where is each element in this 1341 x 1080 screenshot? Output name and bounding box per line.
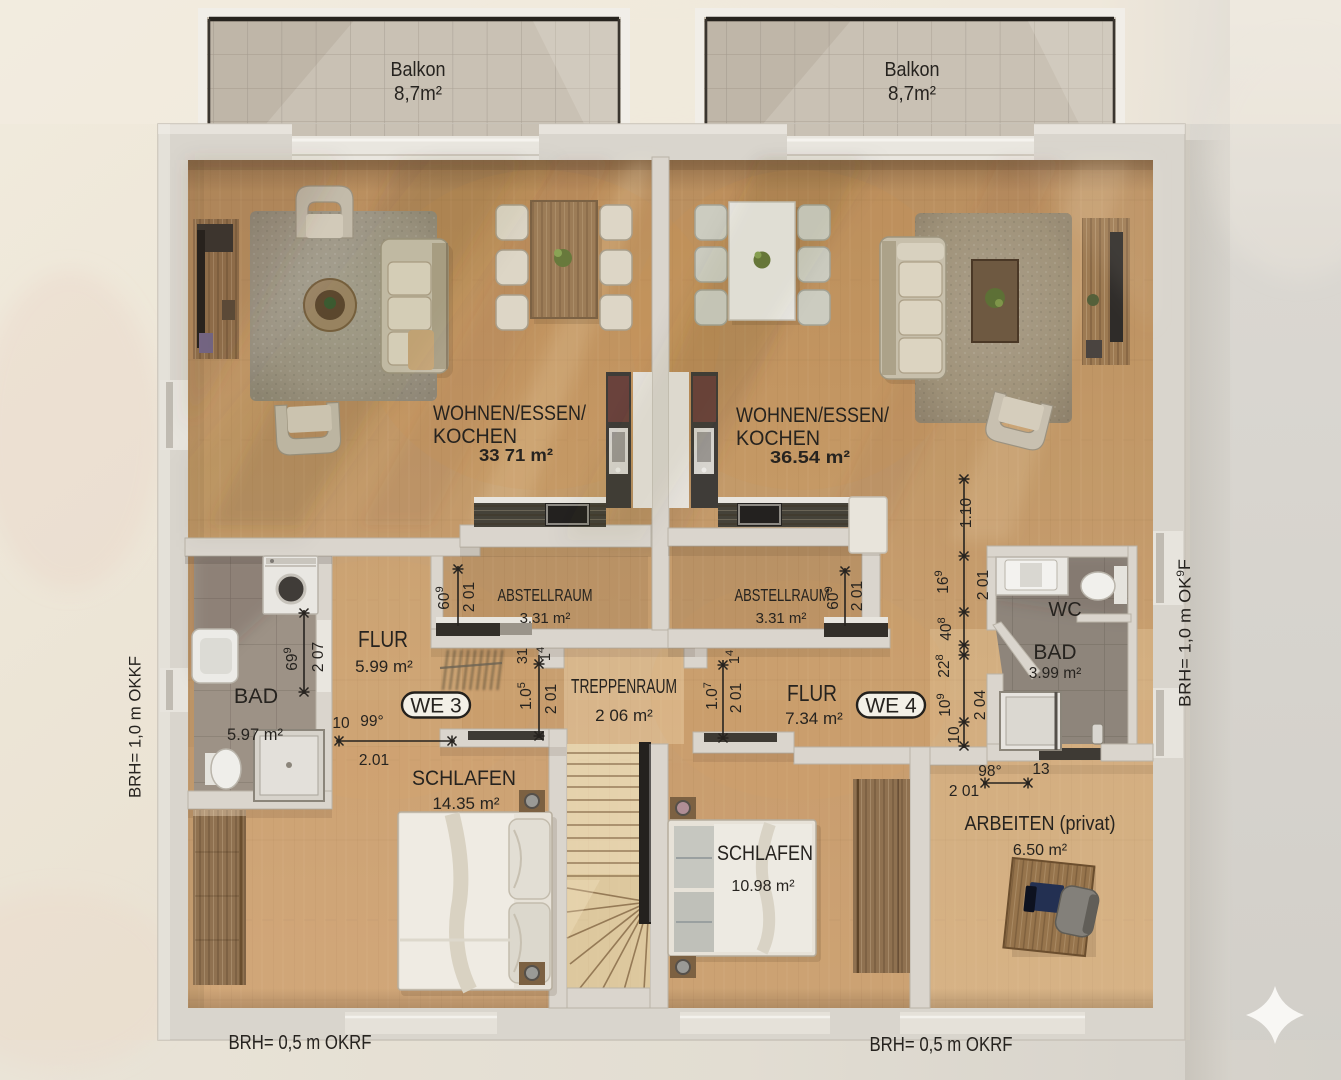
svg-text:TREPPENRAUM: TREPPENRAUM — [571, 676, 677, 698]
svg-text:BRH= 0,5 m OKRF: BRH= 0,5 m OKRF — [870, 1034, 1013, 1056]
svg-text:2 06 m²: 2 06 m² — [595, 706, 653, 725]
svg-text:Balkon: Balkon — [885, 58, 940, 81]
svg-text:BRH= 0,5 m OKRF: BRH= 0,5 m OKRF — [229, 1032, 372, 1054]
svg-text:WE 4: WE 4 — [865, 695, 917, 718]
svg-text:BAD: BAD — [1033, 641, 1076, 664]
svg-text:3.31 m²: 3.31 m² — [520, 610, 571, 627]
svg-text:WOHNEN/ESSEN/: WOHNEN/ESSEN/ — [736, 403, 889, 427]
svg-text:ABSTELLRAUM: ABSTELLRAUM — [498, 585, 593, 605]
svg-text:8,7m²: 8,7m² — [394, 82, 442, 105]
svg-text:BAD: BAD — [234, 684, 278, 708]
svg-text:10.98 m²: 10.98 m² — [731, 878, 795, 895]
svg-text:7.34 m²: 7.34 m² — [785, 709, 843, 728]
svg-text:99°: 99° — [360, 713, 383, 730]
svg-text:2 01: 2 01 — [728, 683, 745, 713]
svg-text:FLUR: FLUR — [787, 680, 837, 706]
svg-text:6.50 m²: 6.50 m² — [1013, 842, 1068, 859]
svg-text:SCHLAFEN: SCHLAFEN — [412, 766, 516, 790]
svg-text:2 01: 2 01 — [949, 783, 979, 800]
svg-text:2 04: 2 04 — [972, 690, 989, 721]
svg-text:BRH= 1,0 m OKKF: BRH= 1,0 m OKKF — [126, 656, 144, 798]
svg-text:BRH= 1,0 m OK9F: BRH= 1,0 m OK9F — [1175, 559, 1194, 707]
svg-text:33 71 m²: 33 71 m² — [479, 445, 553, 465]
svg-text:13: 13 — [1032, 761, 1049, 778]
svg-text:3.99 m²: 3.99 m² — [1029, 665, 1082, 682]
svg-text:5.99 m²: 5.99 m² — [355, 657, 413, 676]
svg-text:ABSTELLRAUM: ABSTELLRAUM — [735, 585, 830, 605]
svg-text:8,7m²: 8,7m² — [888, 82, 936, 105]
svg-text:5.97 m²: 5.97 m² — [227, 726, 283, 744]
svg-text:2 07: 2 07 — [310, 642, 327, 672]
svg-text:2 01: 2 01 — [543, 684, 560, 714]
svg-text:FLUR: FLUR — [358, 626, 408, 652]
svg-text:WE 3: WE 3 — [410, 695, 461, 718]
svg-text:3.31 m²: 3.31 m² — [756, 610, 807, 627]
svg-text:WC: WC — [1048, 599, 1081, 621]
svg-text:2.01: 2.01 — [359, 752, 389, 769]
svg-text:Balkon: Balkon — [391, 58, 446, 81]
svg-text:10: 10 — [332, 715, 350, 732]
svg-text:31: 31 — [515, 648, 531, 664]
svg-text:36.54 m²: 36.54 m² — [770, 447, 850, 467]
svg-text:2 01: 2 01 — [975, 570, 992, 600]
svg-text:98°: 98° — [978, 763, 1001, 780]
svg-text:2 01: 2 01 — [849, 581, 866, 611]
svg-text:WOHNEN/ESSEN/: WOHNEN/ESSEN/ — [433, 401, 586, 425]
svg-text:1.10: 1.10 — [958, 498, 975, 529]
svg-text:SCHLAFEN: SCHLAFEN — [717, 841, 813, 865]
svg-text:2 01: 2 01 — [461, 582, 478, 612]
svg-text:ARBEITEN (privat): ARBEITEN (privat) — [965, 813, 1116, 835]
svg-text:14.35 m²: 14.35 m² — [432, 794, 499, 813]
svg-text:10: 10 — [946, 726, 963, 744]
